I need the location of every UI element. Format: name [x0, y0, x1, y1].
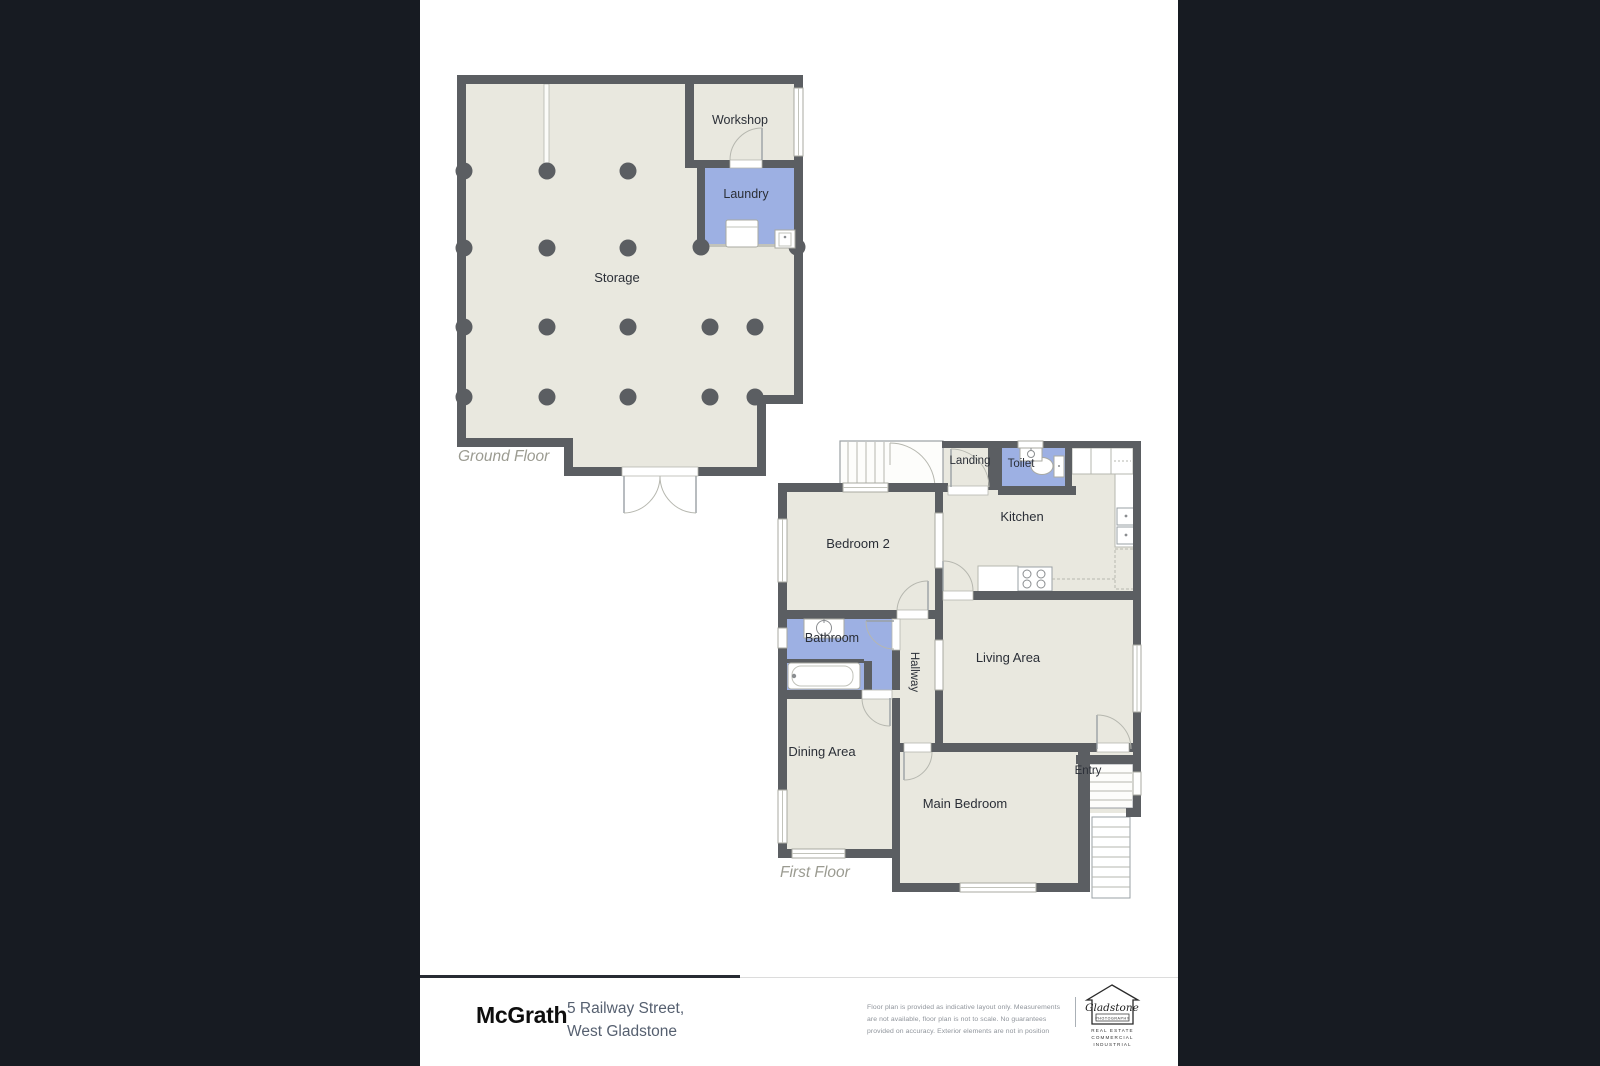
laundry-tub-icon [775, 230, 795, 248]
storage-label: Storage [594, 270, 640, 285]
first-floor-caption: First Floor [780, 864, 851, 881]
property-address: 5 Railway Street, West Gladstone [567, 997, 684, 1044]
floorplan-disclaimer: Floor plan is provided as indicative lay… [867, 1002, 1071, 1038]
external-stairs [1092, 817, 1130, 898]
workshop-window [794, 88, 803, 156]
stove-icon [1018, 567, 1052, 591]
ground-floor-plan: Storage Workshop Laundry Ground Floor [456, 75, 806, 513]
kitchen-counter-top [1072, 448, 1133, 474]
dining-area-label: Dining Area [788, 744, 856, 759]
photography-logo-line3: INDUSTRIAL [1093, 1042, 1131, 1047]
main-bedroom-label: Main Bedroom [923, 796, 1008, 811]
floorplan-drawing: Storage Workshop Laundry Ground Floor [420, 0, 1178, 970]
photography-logo-subtitle: PHOTOGRAPHY [1095, 1016, 1130, 1020]
toilet-label: Toilet [1008, 458, 1036, 470]
disclaimer-line-2: are not available, floor plan is not to … [867, 1014, 1071, 1026]
double-door [622, 467, 698, 513]
laundry-label: Laundry [723, 187, 769, 201]
kitchen-label: Kitchen [1000, 509, 1043, 524]
address-line-2: West Gladstone [567, 1020, 684, 1043]
entry-label: Entry [1075, 765, 1102, 777]
disclaimer-line-1: Floor plan is provided as indicative lay… [867, 1002, 1071, 1014]
bedroom2-label: Bedroom 2 [826, 536, 890, 551]
workshop-label: Workshop [712, 113, 768, 127]
gladstone-photography-logo: Gladstone PHOTOGRAPHY REAL ESTATE COMMER… [1084, 983, 1142, 1054]
footer-separator-bar [1075, 997, 1076, 1027]
bathtub-icon [788, 663, 860, 689]
first-floor-plan: Landing Toilet Kitchen Bedroom 2 Bathroo… [778, 441, 1141, 898]
washing-machine-icon [726, 220, 758, 247]
hallway-label: Hallway [908, 652, 920, 693]
bathroom-shower-area [870, 664, 892, 690]
storage-partition [544, 84, 549, 172]
photography-logo-line1: REAL ESTATE [1091, 1028, 1133, 1033]
mcgrath-logo: McGrath [476, 1002, 567, 1029]
ground-floor-caption: Ground Floor [458, 448, 550, 465]
internal-stairs [840, 441, 943, 489]
footer-divider-dark [420, 975, 740, 978]
disclaimer-line-3: provided on accuracy. Exterior elements … [867, 1026, 1071, 1038]
living-area-label: Living Area [976, 650, 1041, 665]
photography-logo-line2: COMMERCIAL [1091, 1035, 1133, 1040]
landing-label: Landing [950, 455, 991, 467]
bathroom-label: Bathroom [805, 631, 859, 645]
photography-logo-name: Gladstone [1085, 1002, 1139, 1014]
address-line-1: 5 Railway Street, [567, 997, 684, 1020]
footer-divider-light [740, 977, 1178, 978]
floorplan-page: Storage Workshop Laundry Ground Floor [420, 0, 1178, 1066]
